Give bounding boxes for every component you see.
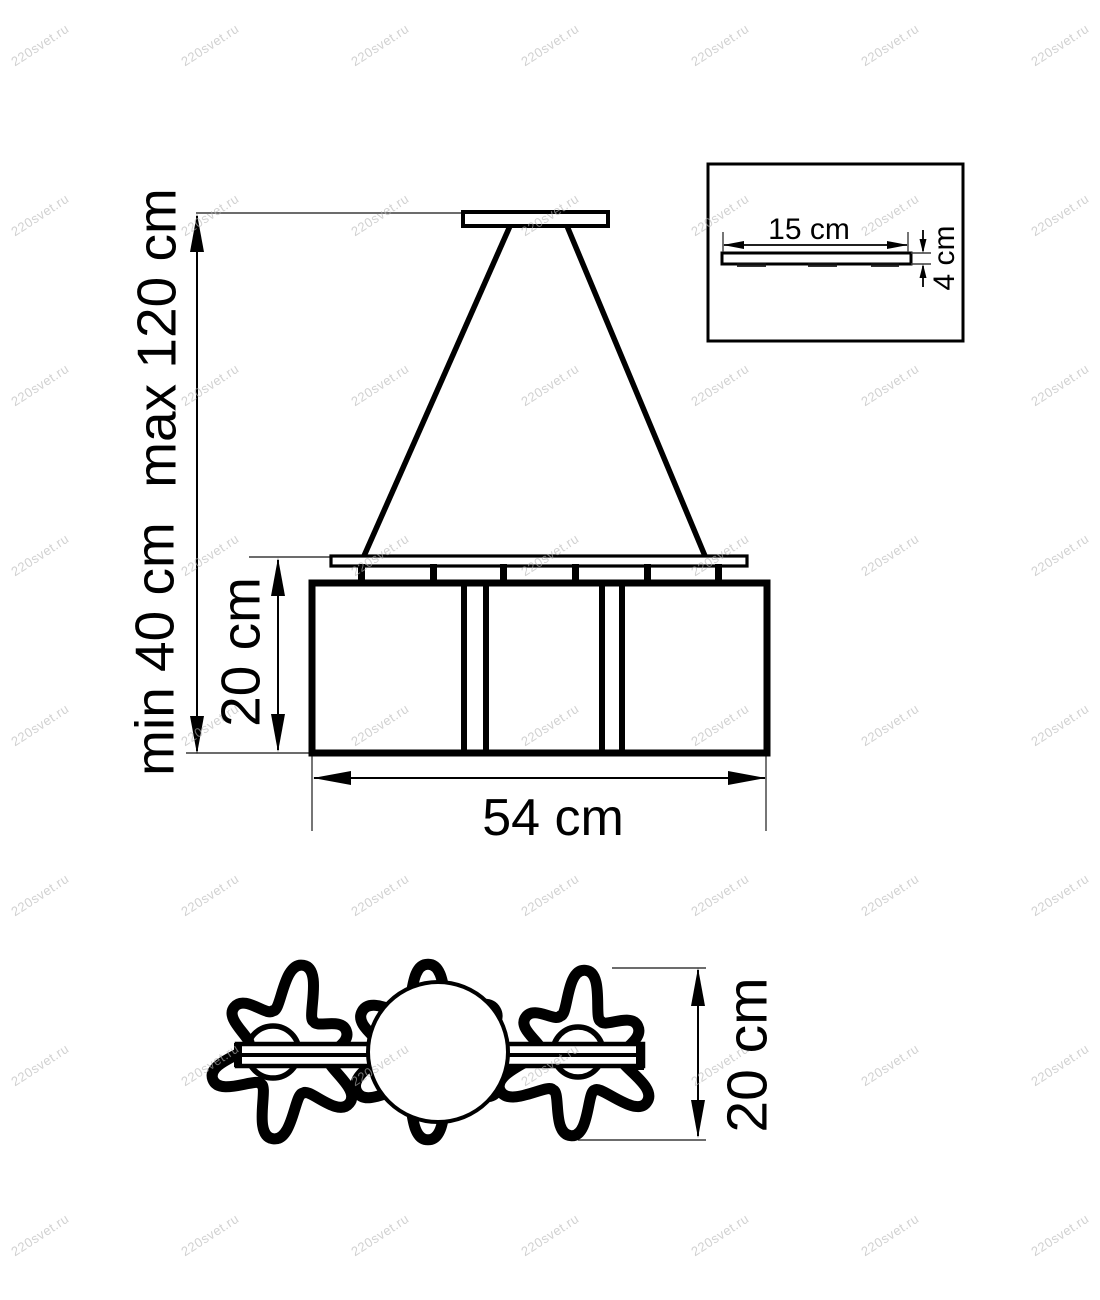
canopy-plate xyxy=(722,253,911,264)
side-view xyxy=(186,212,767,831)
canopy-detail xyxy=(708,164,963,341)
suspension-cable-left xyxy=(364,226,510,556)
rod-end-cap xyxy=(636,1046,644,1070)
canopy-tab xyxy=(737,263,766,267)
lamp-dimension-drawing xyxy=(0,0,1100,1300)
hanger-bar xyxy=(331,556,747,566)
arrowhead-up xyxy=(271,558,285,596)
arrowhead-down xyxy=(271,714,285,752)
top-view xyxy=(212,964,706,1140)
arrowhead-up xyxy=(190,214,204,252)
diagram-page: 220svet.ru220svet.ru220svet.ru220svet.ru… xyxy=(0,0,1100,1300)
arrowhead-left xyxy=(313,771,351,785)
arrowhead-down xyxy=(190,716,204,754)
arrowhead-up xyxy=(691,968,705,1006)
center-sphere xyxy=(368,982,508,1122)
suspension-cable-right xyxy=(567,226,705,556)
rod-end-cap xyxy=(234,1043,242,1067)
canopy-tab xyxy=(871,263,899,267)
lamp-body xyxy=(312,583,767,753)
arrowhead-down xyxy=(691,1100,705,1138)
ceiling-plate xyxy=(463,212,608,226)
arrowhead-right xyxy=(728,771,766,785)
canopy-tab xyxy=(808,263,837,267)
